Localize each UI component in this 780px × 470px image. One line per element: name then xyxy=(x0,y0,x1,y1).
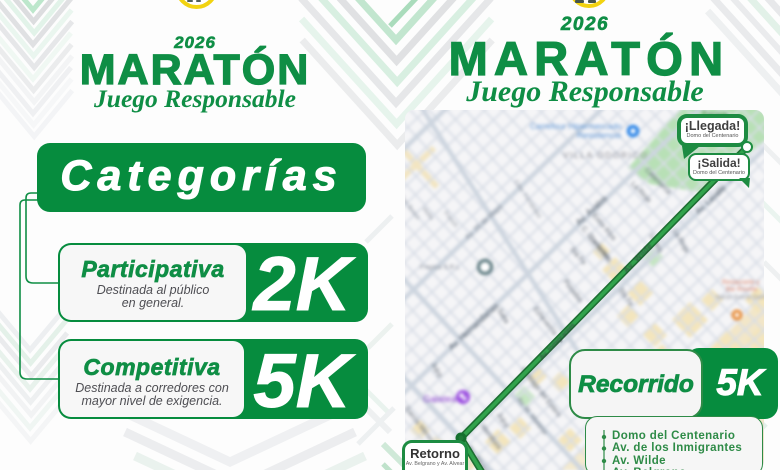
svg-text:Av. Wilde: Av. Wilde xyxy=(622,241,655,274)
